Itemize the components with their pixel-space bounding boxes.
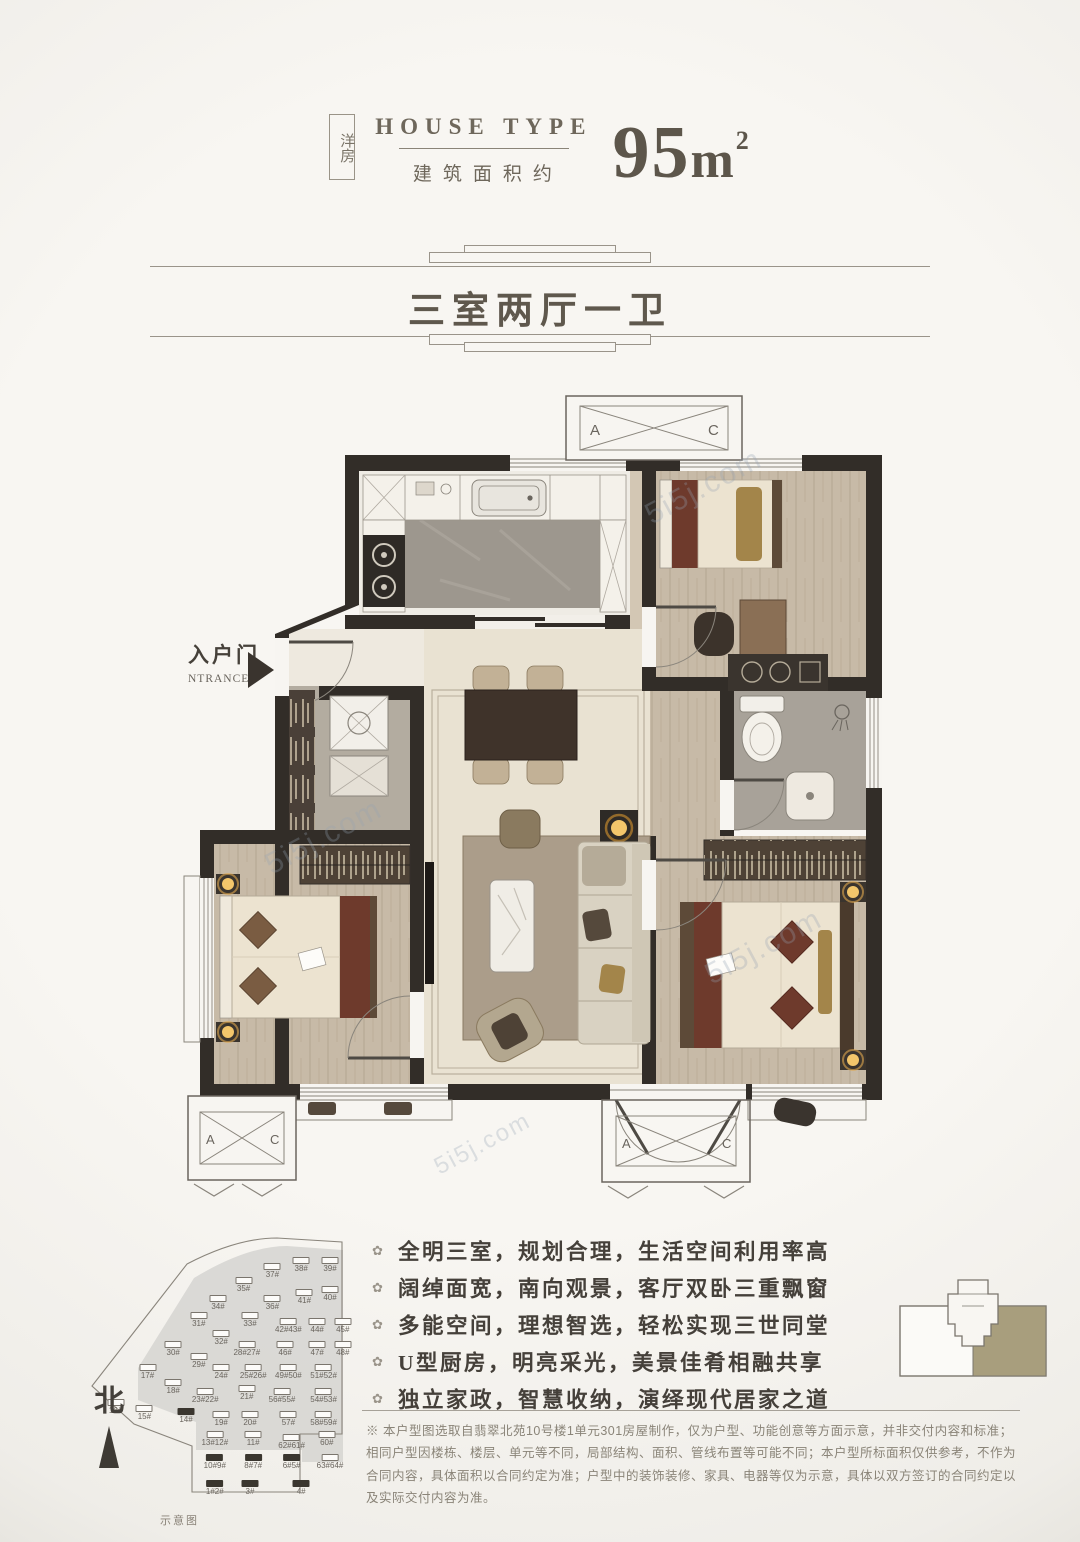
building-number: 29#: [192, 1361, 205, 1369]
building-footprint-icon: [178, 1408, 195, 1415]
building-footprint-icon: [242, 1480, 259, 1487]
building-number: 24#: [215, 1372, 228, 1380]
header: 洋房 HOUSE TYPE 建筑面积约 95m2: [0, 108, 1080, 198]
header-title-en: HOUSE TYPE: [373, 114, 594, 148]
flower-bullet-icon: ✿: [372, 1317, 398, 1333]
building-marker: 44#: [309, 1318, 326, 1334]
building-number: 46#: [279, 1349, 292, 1357]
bay-cushion: [384, 1102, 412, 1115]
building-number: 1#2#: [206, 1488, 224, 1496]
banner-ornament: [429, 252, 651, 263]
building-marker: 46#: [277, 1341, 294, 1357]
building-footprint-icon: [206, 1454, 223, 1461]
tv: [425, 862, 434, 984]
floor-plan-svg: A C A C A C: [180, 390, 900, 1200]
building-number: 32#: [215, 1338, 228, 1346]
building-footprint-icon: [273, 1388, 290, 1395]
feature-item: ✿全明三室，规划合理，生活空间利用率高: [372, 1232, 872, 1269]
building-footprint-icon: [213, 1364, 230, 1371]
building-marker: 33#: [242, 1312, 259, 1328]
building-footprint-icon: [293, 1480, 310, 1487]
building-footprint-icon: [280, 1411, 297, 1418]
building-marker-highlighted: 14#: [178, 1408, 195, 1424]
building-number: 38#: [295, 1265, 308, 1273]
building-footprint-icon: [235, 1277, 252, 1284]
building-marker: 58#59#: [310, 1411, 337, 1427]
building-number: 33#: [243, 1320, 256, 1328]
building-marker: 15#: [136, 1405, 153, 1421]
building-footprint-icon: [213, 1330, 230, 1337]
building-number: 35#: [237, 1285, 250, 1293]
building-marker: 62#61#: [278, 1434, 305, 1450]
left-wardrobe: [300, 846, 410, 884]
building-number: 10#9#: [204, 1462, 226, 1470]
ac-platform-left: A C: [188, 1096, 296, 1196]
master-bed: [680, 898, 854, 1052]
building-number: 51#52#: [310, 1372, 337, 1380]
building-footprint-icon: [136, 1405, 153, 1412]
single-bed: [660, 480, 782, 568]
building-marker: 25#26#: [240, 1364, 267, 1380]
building-marker: 38#: [293, 1257, 310, 1273]
building-footprint-icon: [238, 1385, 255, 1392]
north-label: 北: [94, 1376, 124, 1420]
building-number: 19#: [215, 1419, 228, 1427]
flower-bullet-icon: ✿: [372, 1280, 398, 1296]
building-number: 44#: [311, 1326, 324, 1334]
sofa: [578, 842, 650, 1044]
building-footprint-icon: [277, 1341, 294, 1348]
building-number: 58#59#: [310, 1419, 337, 1427]
desk-chair: [694, 612, 734, 656]
building-footprint-icon: [322, 1257, 339, 1264]
feature-text: U型厨房，明亮采光，美景佳肴相融共享: [398, 1346, 824, 1377]
site-plan-caption: 示意图: [160, 1512, 199, 1528]
unit-key-svg: [888, 1268, 1058, 1398]
building-marker: 37#: [264, 1263, 281, 1279]
building-marker: 35#: [235, 1277, 252, 1293]
building-marker: 19#: [213, 1411, 230, 1427]
building-footprint-icon: [245, 1431, 262, 1438]
left-bed: [220, 896, 377, 1018]
building-marker: 36#: [264, 1295, 281, 1311]
building-footprint-icon: [309, 1318, 326, 1325]
header-titles: HOUSE TYPE 建筑面积约: [373, 114, 594, 186]
building-number: 49#50#: [275, 1372, 302, 1380]
building-footprint-icon: [283, 1454, 300, 1461]
building-footprint-icon: [293, 1257, 310, 1264]
building-marker: 20#: [242, 1411, 259, 1427]
building-number: 63#64#: [317, 1462, 344, 1470]
building-number: 30#: [167, 1349, 180, 1357]
building-marker-highlighted: 10#9#: [204, 1454, 226, 1470]
building-footprint-icon: [334, 1341, 351, 1348]
flower-bullet-icon: ✿: [372, 1391, 398, 1407]
washer: [330, 696, 388, 750]
building-footprint-icon: [280, 1364, 297, 1371]
building-footprint-icon: [242, 1312, 259, 1319]
building-number: 4#: [297, 1488, 306, 1496]
building-footprint-icon: [190, 1312, 207, 1319]
building-footprint-icon: [165, 1341, 182, 1348]
building-marker: 57#: [280, 1411, 297, 1427]
building-footprint-icon: [206, 1480, 223, 1487]
feature-text: 全明三室，规划合理，生活空间利用率高: [398, 1235, 830, 1266]
building-core: [948, 1280, 998, 1346]
laundry-closet: [728, 654, 828, 691]
building-marker-highlighted: 6#5#: [283, 1454, 301, 1470]
building-marker: 24#: [213, 1364, 230, 1380]
feature-list: ✿全明三室，规划合理，生活空间利用率高✿阔绰面宽，南向观景，客厅双卧三重飘窗✿多…: [372, 1232, 872, 1417]
floor-lamp: [600, 810, 638, 846]
bathroom-sink: [786, 772, 834, 820]
building-number: 18#: [167, 1387, 180, 1395]
building-footprint-icon: [321, 1454, 338, 1461]
header-rule: [399, 148, 569, 149]
building-marker: 63#64#: [317, 1454, 344, 1470]
building-footprint-icon: [238, 1341, 255, 1348]
feature-item: ✿多能空间，理想智选，轻松实现三世同堂: [372, 1306, 872, 1343]
building-footprint-icon: [197, 1388, 214, 1395]
building-number: 60#: [320, 1439, 333, 1447]
building-marker: 29#: [190, 1353, 207, 1369]
building-marker: 11#: [245, 1431, 262, 1447]
ac-platform-center: A C: [602, 1100, 750, 1198]
kitchen-sliding-door: [475, 615, 605, 629]
ac-label-c: C: [708, 422, 719, 439]
building-footprint-icon: [165, 1379, 182, 1386]
building-footprint-icon: [139, 1364, 156, 1371]
toilet: [740, 696, 784, 762]
building-footprint-icon: [245, 1364, 262, 1371]
building-marker: 47#: [309, 1341, 326, 1357]
building-marker: 23#22#: [192, 1388, 219, 1404]
entrance-label: 入户门 NTRANCE: [188, 643, 274, 688]
building-marker: 28#27#: [233, 1341, 260, 1357]
house-tag: 洋房: [329, 114, 355, 180]
unit-location-key: [888, 1268, 1058, 1398]
building-footprint-icon: [309, 1341, 326, 1348]
disclaimer-text: ※ 本户型图选取自翡翠北苑10号楼1单元301房屋制作，仅为户型、功能创意等方面…: [366, 1420, 1018, 1509]
building-number: 47#: [311, 1349, 324, 1357]
bay-cushion: [308, 1102, 336, 1115]
building-number: 11#: [247, 1439, 260, 1447]
building-marker-highlighted: 8#7#: [244, 1454, 262, 1470]
building-footprint-icon: [318, 1431, 335, 1438]
site-plan-buildings: 37#38#39#35#34#36#41#40#31#33#42#43#44#4…: [42, 1236, 362, 1526]
building-number: 15#: [138, 1413, 151, 1421]
ac-label-c: C: [722, 1136, 731, 1151]
building-number: 31#: [192, 1320, 205, 1328]
building-marker: 48#: [334, 1341, 351, 1357]
building-footprint-icon: [264, 1263, 281, 1270]
building-number: 36#: [266, 1303, 279, 1311]
building-number: 25#26#: [240, 1372, 267, 1380]
banner-line-top: [150, 266, 930, 267]
building-number: 8#7#: [244, 1462, 262, 1470]
building-marker-highlighted: 3#: [242, 1480, 259, 1496]
building-number: 40#: [323, 1294, 336, 1302]
north-arrow-icon: [99, 1426, 119, 1468]
building-footprint-icon: [242, 1411, 259, 1418]
kitchen-appliance: [416, 482, 434, 495]
building-number: 48#: [336, 1349, 349, 1357]
building-number: 28#27#: [233, 1349, 260, 1357]
building-footprint-icon: [315, 1388, 332, 1395]
building-footprint-icon: [280, 1318, 297, 1325]
building-marker: 30#: [165, 1341, 182, 1357]
ac-platform-top: A C: [566, 396, 742, 460]
building-number: 42#43#: [275, 1326, 302, 1334]
building-footprint-icon: [315, 1411, 332, 1418]
feature-item: ✿独立家政，智慧收纳，演绎现代居家之道: [372, 1380, 872, 1417]
building-marker: 17#: [139, 1364, 156, 1380]
coffee-table: [490, 880, 534, 972]
header-subtitle: 建筑面积约: [413, 159, 563, 186]
area-value: 95m2: [612, 104, 750, 198]
building-number: 54#53#: [310, 1396, 337, 1404]
building-marker: 41#: [296, 1289, 313, 1305]
building-footprint-icon: [322, 1286, 339, 1293]
building-marker-highlighted: 4#: [293, 1480, 310, 1496]
building-marker: 56#55#: [269, 1388, 296, 1404]
building-number: 6#5#: [283, 1462, 301, 1470]
building-marker: 32#: [213, 1330, 230, 1346]
building-footprint-icon: [245, 1454, 262, 1461]
ac-label-a: A: [206, 1132, 215, 1147]
building-number: 62#61#: [278, 1442, 305, 1450]
building-number: 57#: [282, 1419, 295, 1427]
building-marker: 54#53#: [310, 1388, 337, 1404]
building-number: 56#55#: [269, 1396, 296, 1404]
feature-item: ✿阔绰面宽，南向观景，客厅双卧三重飘窗: [372, 1269, 872, 1306]
building-number: 34#: [211, 1303, 224, 1311]
building-number: 14#: [179, 1416, 192, 1424]
poster-page: 洋房 HOUSE TYPE 建筑面积约 95m2 三室两厅一卫: [0, 0, 1080, 1542]
feature-text: 多能空间，理想智选，轻松实现三世同堂: [398, 1309, 830, 1340]
building-number: 37#: [266, 1271, 279, 1279]
building-footprint-icon: [334, 1318, 351, 1325]
building-footprint-icon: [213, 1411, 230, 1418]
ac-label-a: A: [590, 422, 600, 439]
banner-ornament: [464, 342, 616, 352]
site-plan: 37#38#39#35#34#36#41#40#31#33#42#43#44#4…: [42, 1236, 362, 1526]
building-marker: 31#: [190, 1312, 207, 1328]
building-marker: 21#: [238, 1385, 255, 1401]
building-marker-highlighted: 1#2#: [206, 1480, 224, 1496]
building-marker: 13#12#: [201, 1431, 228, 1447]
building-number: 13#12#: [201, 1439, 228, 1447]
feature-text: 阔绰面宽，南向观景，客厅双卧三重飘窗: [398, 1272, 830, 1303]
stove: [363, 535, 405, 607]
building-number: 21#: [240, 1393, 253, 1401]
ac-label-a: A: [622, 1136, 631, 1151]
building-marker: 34#: [210, 1295, 227, 1311]
building-number: 45#: [336, 1326, 349, 1334]
building-number: 3#: [246, 1488, 255, 1496]
building-marker: 42#43#: [275, 1318, 302, 1334]
building-marker: 39#: [322, 1257, 339, 1273]
building-marker: 60#: [318, 1431, 335, 1447]
title-banner: 三室两厅一卫: [0, 250, 1080, 350]
building-marker: 51#52#: [310, 1364, 337, 1380]
building-footprint-icon: [264, 1295, 281, 1302]
floor-plan: A C A C A C: [180, 390, 900, 1200]
building-footprint-icon: [210, 1295, 227, 1302]
building-footprint-icon: [190, 1353, 207, 1360]
kitchen-sink: [472, 480, 546, 516]
disclaimer-divider: [362, 1410, 1020, 1411]
building-marker: 45#: [334, 1318, 351, 1334]
building-number: 23#22#: [192, 1396, 219, 1404]
building-footprint-icon: [283, 1434, 300, 1441]
hallway-nook: [642, 686, 720, 836]
entrance-arrow-icon: [248, 652, 274, 688]
building-marker: 18#: [165, 1379, 182, 1395]
layout-title: 三室两厅一卫: [0, 280, 1080, 334]
entrance-label-en: NTRANCE: [188, 673, 249, 685]
north-indicator: 北: [94, 1376, 124, 1468]
master-wardrobe: [704, 840, 866, 880]
building-number: 20#: [243, 1419, 256, 1427]
pouf: [500, 810, 540, 848]
building-footprint-icon: [206, 1431, 223, 1438]
building-marker: 40#: [322, 1286, 339, 1302]
building-number: 39#: [323, 1265, 336, 1273]
flower-bullet-icon: ✿: [372, 1354, 398, 1370]
ac-label-c: C: [270, 1132, 279, 1147]
building-number: 41#: [298, 1297, 311, 1305]
building-marker: 49#50#: [275, 1364, 302, 1380]
building-number: 17#: [141, 1372, 154, 1380]
flower-bullet-icon: ✿: [372, 1243, 398, 1259]
building-footprint-icon: [296, 1289, 313, 1296]
feature-item: ✿U型厨房，明亮采光，美景佳肴相融共享: [372, 1343, 872, 1380]
building-footprint-icon: [315, 1364, 332, 1371]
